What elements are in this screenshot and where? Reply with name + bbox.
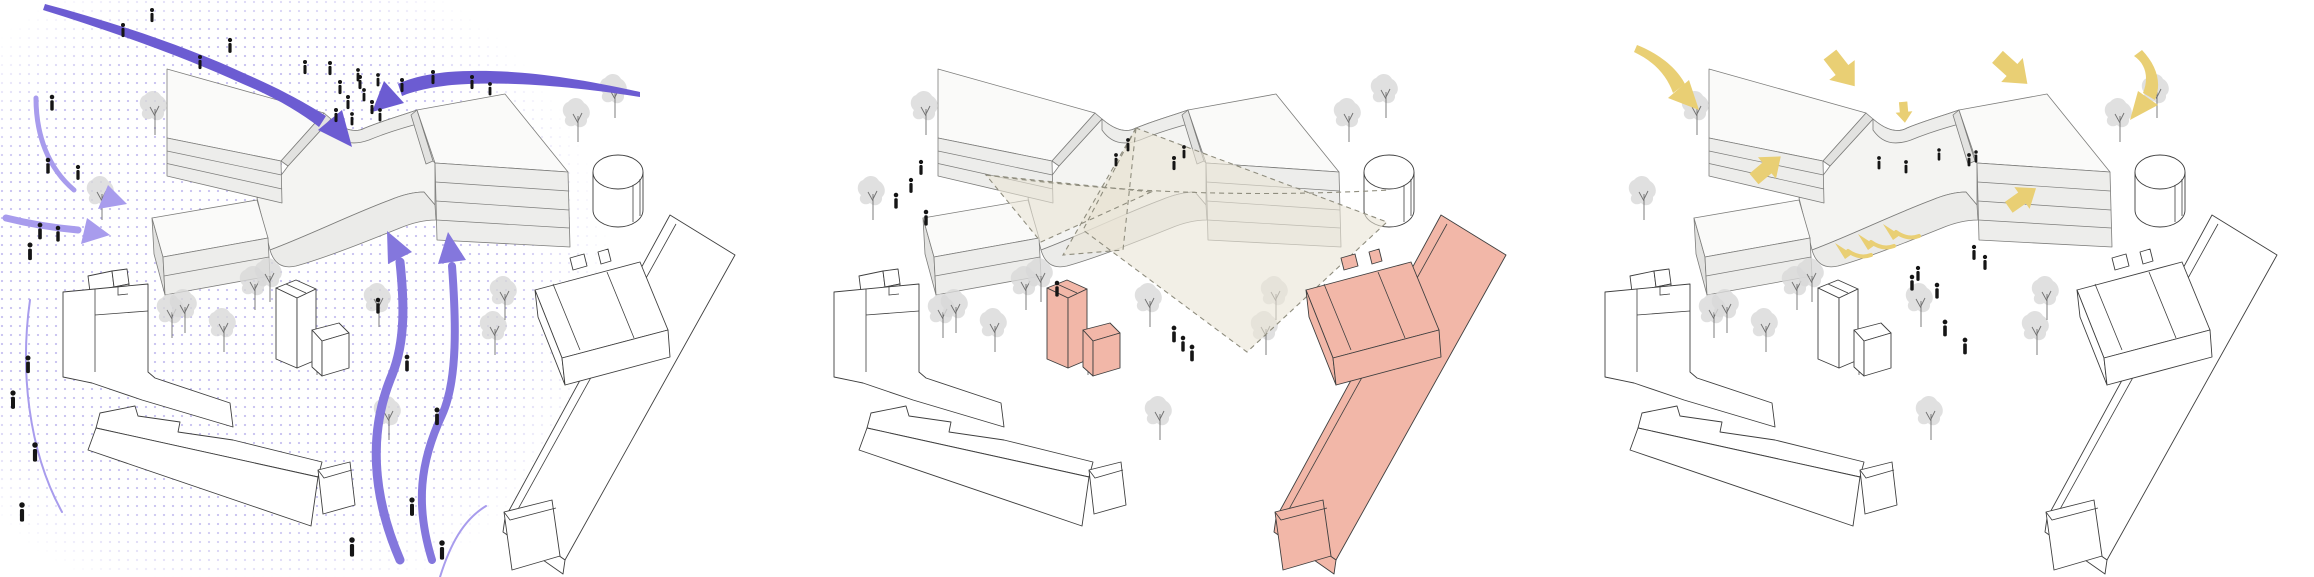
person-icon xyxy=(56,226,61,242)
person-icon xyxy=(10,390,15,408)
person-icon xyxy=(1937,148,1941,160)
context-building-right xyxy=(2045,215,2277,574)
person-icon xyxy=(346,95,350,109)
person-icon xyxy=(338,80,342,94)
person-icon xyxy=(376,73,380,86)
person-icon xyxy=(370,100,374,114)
person-icon xyxy=(32,442,38,461)
person-icon xyxy=(431,70,435,84)
person-icon xyxy=(303,60,307,74)
person-icon xyxy=(1182,145,1186,158)
person-icon xyxy=(1972,245,1976,260)
person-icon xyxy=(1910,275,1915,291)
sun-arrow-curved-left xyxy=(1634,45,1685,93)
person-icon xyxy=(198,55,202,69)
person-icon xyxy=(26,356,31,374)
person-icon xyxy=(376,298,381,314)
person-icon xyxy=(488,82,492,95)
panel-pedestrian-flows xyxy=(0,0,735,577)
sun-arrow-icon xyxy=(1817,45,1867,97)
person-icon xyxy=(28,243,33,261)
sun-arrow-icon xyxy=(1895,101,1914,123)
person-icon xyxy=(1983,255,1987,270)
person-icon xyxy=(470,75,474,89)
person-icon xyxy=(1877,156,1881,169)
person-icon xyxy=(1963,338,1968,355)
triptych-svg xyxy=(0,0,2314,577)
person-icon xyxy=(435,408,440,426)
person-icon xyxy=(349,537,355,556)
person-icon xyxy=(1172,156,1176,170)
person-icon xyxy=(919,160,923,175)
panel-sun-entries xyxy=(1605,45,2277,574)
person-icon xyxy=(362,88,366,101)
person-icon xyxy=(1190,345,1195,362)
person-icon xyxy=(1916,266,1920,281)
diagram-canvas xyxy=(0,0,2314,577)
person-icon xyxy=(50,95,55,111)
person-icon xyxy=(350,112,354,125)
person-icon xyxy=(439,540,445,559)
person-icon xyxy=(19,502,25,521)
person-icon xyxy=(1967,153,1971,166)
person-icon xyxy=(1181,336,1186,352)
person-icon xyxy=(38,223,43,240)
person-icon xyxy=(328,61,332,75)
person-icon xyxy=(1055,281,1060,297)
person-icon xyxy=(924,210,929,226)
person-icon xyxy=(909,178,913,193)
person-icon xyxy=(1935,283,1940,299)
person-icon xyxy=(409,497,414,515)
person-icon xyxy=(121,23,125,37)
panel-sightlines-context xyxy=(834,69,1506,574)
person-icon xyxy=(334,108,338,122)
person-icon xyxy=(76,165,80,180)
sun-arrow-icon xyxy=(1987,45,2038,96)
person-icon xyxy=(1974,150,1978,162)
person-icon xyxy=(1114,153,1118,166)
person-icon xyxy=(378,108,382,121)
person-icon xyxy=(150,8,154,22)
person-icon xyxy=(356,68,360,81)
person-icon xyxy=(228,38,232,53)
person-icon xyxy=(894,193,899,209)
person-icon xyxy=(1943,320,1948,337)
person-icon xyxy=(400,78,404,92)
person-icon xyxy=(1126,138,1130,151)
person-icon xyxy=(1172,326,1177,343)
person-icon xyxy=(46,158,51,174)
context-building-tower xyxy=(1818,280,1891,376)
person-icon xyxy=(405,355,410,372)
person-icon xyxy=(1904,160,1908,173)
